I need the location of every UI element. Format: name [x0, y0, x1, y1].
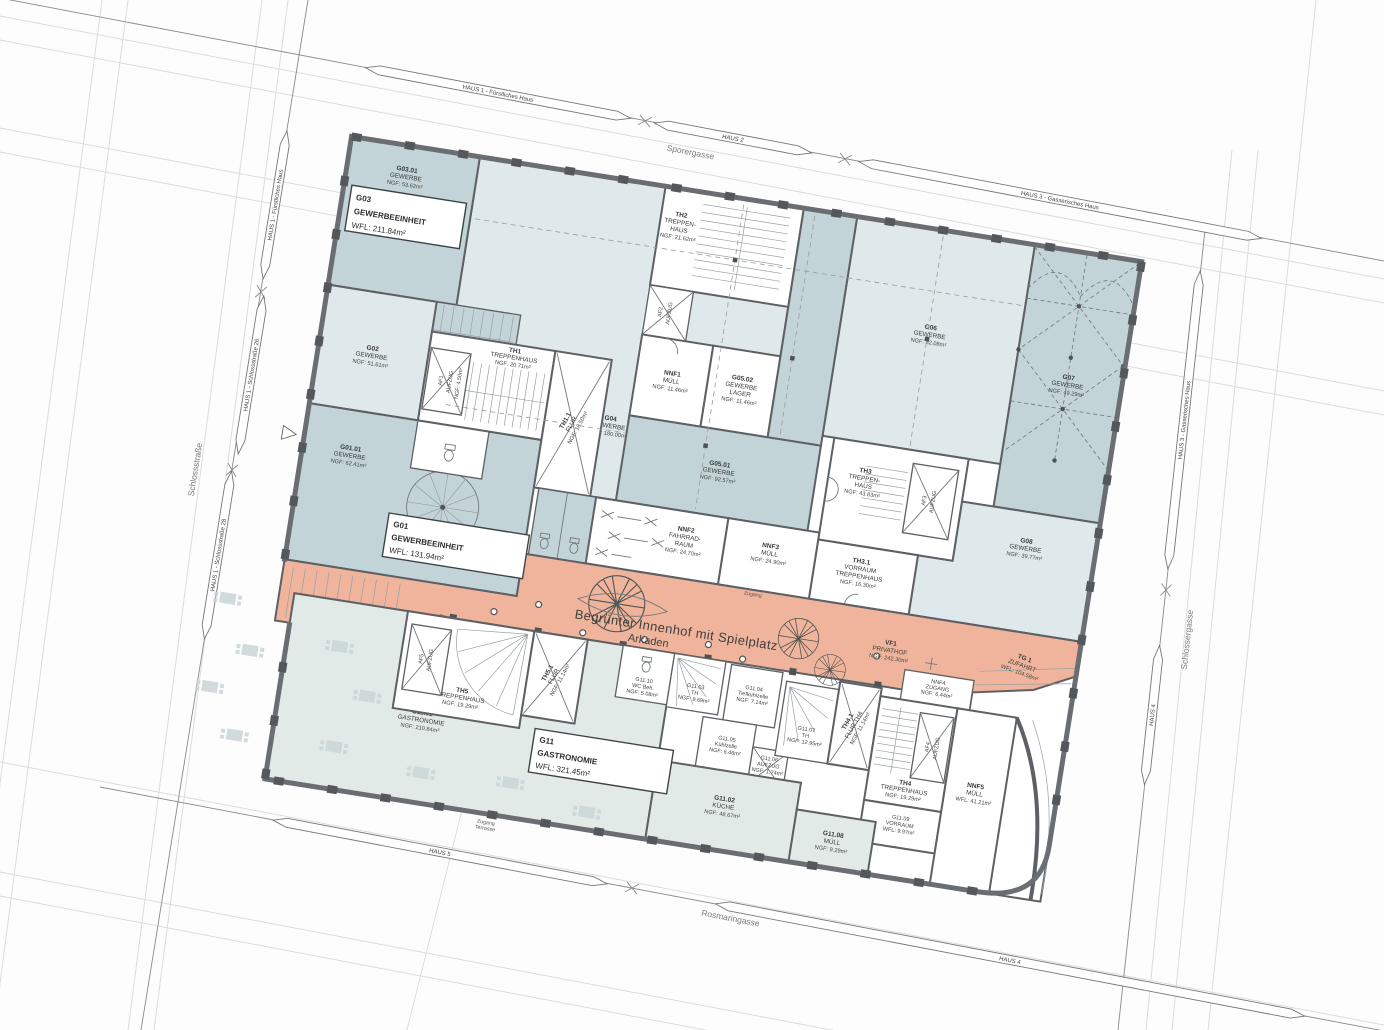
- entrance-arrow-icon: [281, 425, 297, 441]
- cartouche-haus1-left-c: HAUS 1 - Schlossstraße 28: [200, 470, 236, 639]
- room-wc-pair: [528, 488, 596, 563]
- cartouche-break-icon: [838, 153, 852, 165]
- cartouche-haus3-right: HAUS 3 - Gasserisches Haus: [1163, 270, 1204, 569]
- building-hof-zu-wien: G04 GEWERBE NGF: 180.00m² G06 GEWERBE NG…: [180, 126, 1142, 920]
- svg-text:HAUS 4: HAUS 4: [1149, 703, 1157, 726]
- cartouche-haus1-left-a: HAUS 1 - Fürstliches Haus: [259, 130, 292, 280]
- room-g11-04: G11.04 Tiefkühlzelle NGF: 7.14m²: [723, 664, 783, 727]
- street-name-sporergasse: Sporergasse: [666, 143, 715, 162]
- room-nnf1: NNF1 MÜLL NGF: 11.46m²: [629, 334, 713, 426]
- room-g11-10: G11.10 WC Beh. NGF: 5.08m²: [615, 645, 674, 704]
- street-name-schlossstrasse: Schlossstraße: [186, 442, 205, 497]
- cartouche-haus4-right: HAUS 4: [1140, 645, 1164, 785]
- cartouche-break-icon: [625, 882, 639, 894]
- room-g05-02: G05.02 GEWERBE LAGER NGF: 11.46m²: [700, 346, 780, 438]
- cartouche-break-icon: [638, 115, 652, 127]
- street-name-schlossergasse: Schlossergasse: [1179, 609, 1195, 670]
- site-plan-canvas: Sporergasse Schlossstraße Schlossergasse…: [0, 0, 1384, 1030]
- elevator-af2-icon: AF2 AUFZUG: [642, 285, 693, 341]
- cartouche-haus4-bottom: HAUS 4: [714, 899, 1305, 1020]
- zugang-terrasse-label: Zugang Terrasse: [474, 818, 496, 833]
- room-g11-03: G11.03 TH NGF: 9.69m²: [666, 653, 726, 714]
- room-g02: G02 GEWERBE NGF: 51.61m²: [309, 285, 436, 421]
- room-g11-05: G11.05 Kühlzelle NGF: 6.46m²: [695, 717, 756, 775]
